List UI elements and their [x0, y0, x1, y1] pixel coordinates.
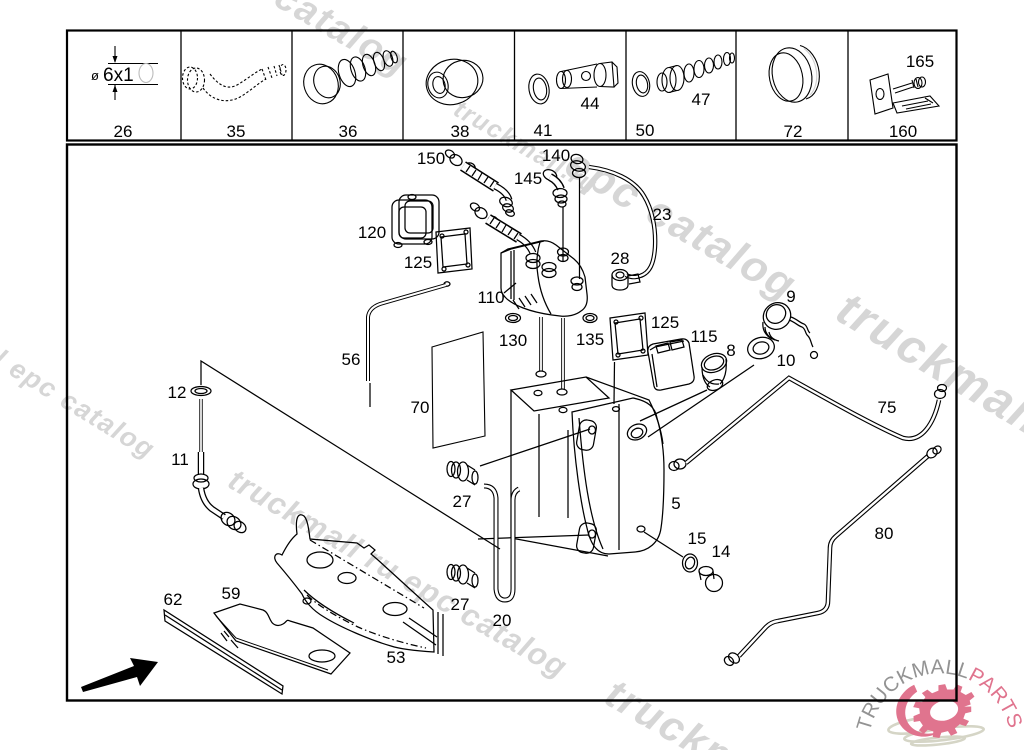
svg-text:130: 130: [499, 331, 527, 350]
svg-text:120: 120: [358, 223, 386, 242]
svg-text:72: 72: [784, 122, 803, 141]
svg-text:28: 28: [611, 249, 630, 268]
svg-text:62: 62: [164, 590, 183, 609]
svg-text:38: 38: [451, 122, 470, 141]
svg-text:11: 11: [171, 450, 189, 469]
svg-text:26: 26: [114, 122, 133, 141]
svg-text:150: 150: [417, 149, 445, 168]
svg-text:truckmall.ru e: truckmall.ru e: [827, 282, 1024, 504]
svg-text:44: 44: [581, 94, 600, 113]
svg-text:catalog: catalog: [268, 0, 416, 85]
svg-text:14: 14: [712, 542, 731, 561]
svg-text:59: 59: [222, 584, 241, 603]
svg-text:135: 135: [576, 330, 604, 349]
svg-text:8: 8: [726, 341, 735, 360]
svg-text:5: 5: [671, 494, 680, 513]
svg-text:160: 160: [889, 122, 917, 141]
svg-text:53: 53: [387, 648, 406, 667]
svg-text:115: 115: [690, 327, 717, 346]
svg-text:10: 10: [777, 351, 796, 370]
svg-text:35: 35: [227, 122, 246, 141]
svg-text:140: 140: [542, 146, 570, 165]
svg-text:ø: ø: [91, 68, 99, 83]
svg-text:23: 23: [653, 205, 672, 224]
svg-text:41: 41: [534, 121, 553, 140]
svg-text:27: 27: [453, 492, 472, 511]
svg-text:l epc catalog: l epc catalog: [0, 344, 161, 465]
svg-text:165: 165: [906, 52, 934, 71]
svg-text:6x1: 6x1: [103, 65, 134, 86]
svg-text:110: 110: [477, 288, 504, 307]
svg-text:epc catalog: epc catalog: [557, 139, 805, 310]
svg-text:125: 125: [404, 253, 432, 272]
svg-text:47: 47: [692, 90, 711, 109]
svg-text:56: 56: [342, 350, 361, 369]
svg-text:36: 36: [339, 122, 358, 141]
svg-text:27: 27: [451, 595, 470, 614]
svg-text:truckma: truckma: [598, 669, 775, 750]
svg-text:125: 125: [651, 313, 679, 332]
svg-text:75: 75: [878, 398, 897, 417]
svg-text:12: 12: [168, 383, 187, 402]
svg-text:145: 145: [514, 169, 542, 188]
svg-text:15: 15: [688, 529, 707, 548]
svg-text:9: 9: [786, 287, 795, 306]
svg-text:70: 70: [411, 398, 430, 417]
svg-text:20: 20: [493, 611, 512, 630]
svg-text:50: 50: [636, 121, 655, 140]
svg-text:80: 80: [875, 524, 894, 543]
